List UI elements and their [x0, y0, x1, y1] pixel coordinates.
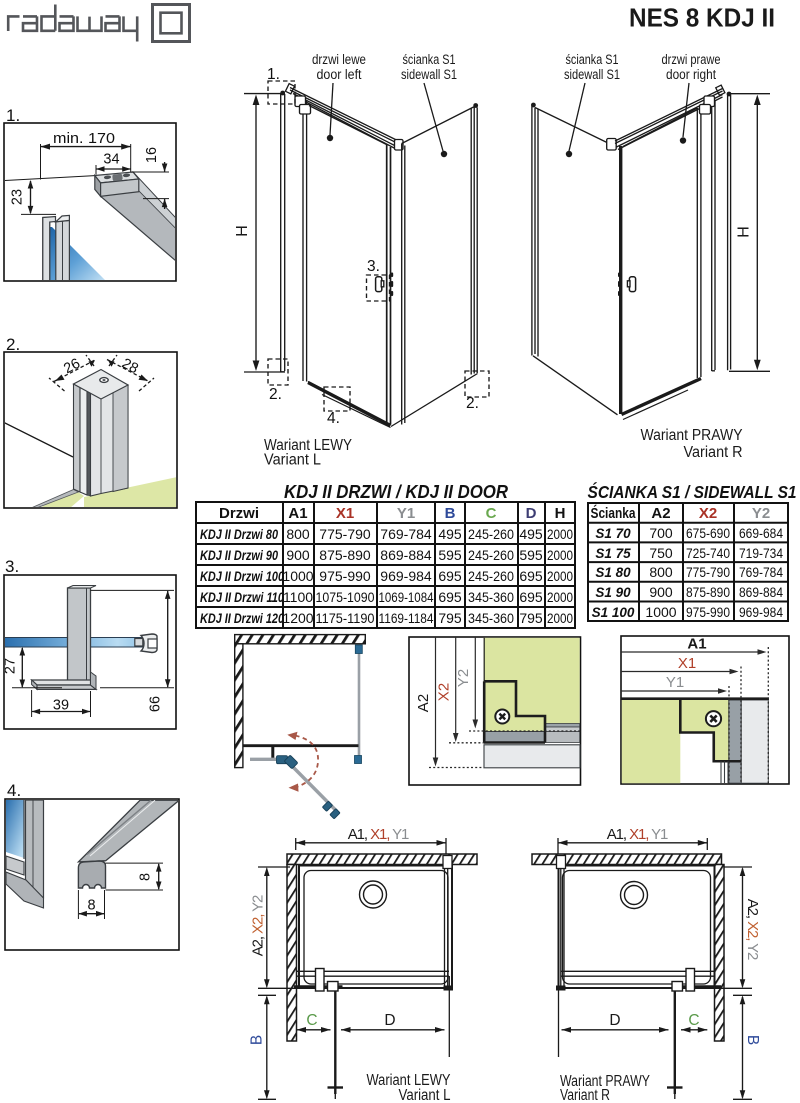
svg-text:595: 595: [519, 547, 543, 563]
svg-text:KDJ II Drzwi 80: KDJ II Drzwi 80: [200, 527, 278, 542]
svg-text:675-690: 675-690: [686, 525, 730, 541]
svg-text:X2: X2: [436, 683, 453, 701]
svg-text:S1 100: S1 100: [592, 605, 635, 620]
svg-text:A1: A1: [288, 505, 307, 522]
svg-text:975-990: 975-990: [319, 568, 371, 584]
svg-text:H: H: [736, 226, 753, 238]
svg-text:Ścianka: Ścianka: [591, 504, 637, 522]
svg-text:16: 16: [144, 147, 160, 163]
svg-text:door left: door left: [317, 67, 362, 82]
svg-text:KDJ II Drzwi 100: KDJ II Drzwi 100: [200, 569, 284, 584]
svg-text:H: H: [555, 505, 566, 522]
svg-text:S1 70: S1 70: [595, 526, 631, 541]
svg-text:H: H: [234, 225, 251, 237]
svg-text:Variant L: Variant L: [264, 452, 321, 469]
svg-text:66: 66: [148, 696, 164, 712]
svg-text:1169-1184: 1169-1184: [379, 610, 434, 626]
svg-text:sidewall S1: sidewall S1: [564, 67, 620, 82]
svg-text:A1: A1: [687, 636, 706, 653]
svg-text:2000: 2000: [547, 547, 573, 563]
svg-text:A1, X1, Y1: A1, X1, Y1: [348, 826, 409, 843]
svg-text:595: 595: [438, 547, 462, 563]
svg-text:2000: 2000: [547, 589, 573, 605]
svg-text:245-260: 245-260: [468, 568, 514, 584]
svg-text:D: D: [384, 1012, 395, 1029]
svg-text:A1, X1, Y1: A1, X1, Y1: [607, 826, 668, 843]
svg-text:800: 800: [649, 564, 673, 580]
svg-text:2000: 2000: [547, 526, 573, 542]
svg-text:3.: 3.: [5, 557, 19, 576]
svg-text:S1 75: S1 75: [595, 546, 631, 561]
svg-text:D: D: [526, 505, 537, 522]
svg-text:Variant L: Variant L: [399, 1087, 451, 1103]
svg-text:KDJ II DRZWI / KDJ II DOOR: KDJ II DRZWI / KDJ II DOOR: [284, 482, 508, 502]
svg-text:245-260: 245-260: [468, 526, 514, 542]
svg-text:1100: 1100: [283, 589, 313, 605]
svg-text:X1: X1: [678, 655, 696, 672]
svg-text:Y1: Y1: [666, 674, 684, 691]
svg-text:719-734: 719-734: [739, 545, 783, 561]
svg-text:1175-1190: 1175-1190: [316, 610, 375, 626]
svg-text:769-784: 769-784: [380, 526, 432, 542]
svg-text:A2: A2: [415, 694, 432, 712]
svg-text:Y2: Y2: [752, 505, 770, 522]
svg-text:695: 695: [438, 568, 462, 584]
svg-text:1.: 1.: [6, 106, 20, 125]
svg-text:495: 495: [519, 526, 543, 542]
svg-text:669-684: 669-684: [739, 525, 783, 541]
svg-text:1200: 1200: [282, 610, 313, 626]
svg-text:969-984: 969-984: [380, 568, 432, 584]
svg-text:869-884: 869-884: [380, 547, 432, 563]
svg-text:C: C: [306, 1012, 317, 1029]
svg-text:8: 8: [87, 898, 95, 914]
svg-text:2.: 2.: [466, 395, 479, 412]
svg-text:X2: X2: [699, 505, 717, 522]
svg-text:KDJ II Drzwi 120: KDJ II Drzwi 120: [200, 611, 284, 626]
svg-text:775-790: 775-790: [686, 564, 730, 580]
svg-text:2.: 2.: [6, 335, 20, 354]
svg-text:B: B: [744, 1035, 761, 1045]
svg-text:drzwi prawe: drzwi prawe: [662, 52, 721, 67]
svg-text:775-790: 775-790: [319, 526, 371, 542]
svg-text:A2, X2, Y2: A2, X2, Y2: [250, 895, 267, 956]
svg-text:NES 8 KDJ II: NES 8 KDJ II: [629, 3, 775, 33]
svg-text:869-884: 869-884: [739, 584, 783, 600]
svg-text:Wariant PRAWY: Wariant PRAWY: [641, 427, 743, 444]
svg-text:975-990: 975-990: [686, 604, 730, 620]
svg-text:900: 900: [649, 584, 673, 600]
svg-text:ścianka S1: ścianka S1: [566, 52, 619, 67]
svg-text:23: 23: [10, 189, 26, 205]
svg-text:969-984: 969-984: [739, 604, 783, 620]
svg-text:695: 695: [438, 589, 462, 605]
svg-text:1.: 1.: [267, 66, 280, 83]
svg-text:795: 795: [519, 610, 543, 626]
svg-text:sidewall S1: sidewall S1: [401, 67, 457, 82]
svg-text:900: 900: [286, 547, 310, 563]
svg-text:345-360: 345-360: [468, 589, 514, 605]
svg-text:1075-1090: 1075-1090: [316, 589, 375, 605]
svg-text:695: 695: [519, 568, 543, 584]
svg-text:Y2: Y2: [455, 669, 472, 687]
svg-text:S1 90: S1 90: [595, 585, 631, 600]
svg-text:Variant R: Variant R: [560, 1087, 610, 1103]
svg-text:875-890: 875-890: [319, 547, 371, 563]
svg-text:1000: 1000: [645, 604, 676, 620]
svg-text:4.: 4.: [327, 410, 340, 427]
svg-text:1000: 1000: [282, 568, 313, 584]
svg-text:725-740: 725-740: [686, 545, 730, 561]
svg-text:750: 750: [649, 545, 673, 561]
svg-text:495: 495: [438, 526, 462, 542]
svg-text:KDJ II Drzwi 90: KDJ II Drzwi 90: [200, 548, 278, 563]
svg-text:245-260: 245-260: [468, 547, 514, 563]
svg-text:ścianka S1: ścianka S1: [403, 52, 456, 67]
svg-text:drzwi lewe: drzwi lewe: [312, 52, 366, 67]
svg-text:D: D: [609, 1012, 620, 1029]
svg-text:Drzwi: Drzwi: [219, 505, 259, 522]
svg-text:min. 170: min. 170: [53, 131, 115, 147]
svg-text:34: 34: [103, 152, 119, 168]
svg-text:A2, X2, Y2: A2, X2, Y2: [744, 899, 761, 960]
svg-text:2.: 2.: [269, 386, 282, 403]
svg-text:A2: A2: [651, 505, 670, 522]
svg-text:2000: 2000: [547, 610, 573, 626]
svg-text:4.: 4.: [7, 781, 21, 800]
svg-text:1069-1084: 1069-1084: [379, 589, 434, 605]
svg-text:C: C: [688, 1012, 699, 1029]
svg-text:3.: 3.: [367, 258, 380, 275]
svg-text:2000: 2000: [547, 568, 573, 584]
svg-text:ŚCIANKA S1 / SIDEWALL S1: ŚCIANKA S1 / SIDEWALL S1: [588, 481, 797, 502]
svg-text:C: C: [486, 505, 497, 522]
svg-text:700: 700: [649, 525, 673, 541]
svg-text:Y1: Y1: [397, 505, 415, 522]
svg-text:Variant R: Variant R: [684, 444, 743, 461]
svg-text:695: 695: [519, 589, 543, 605]
svg-text:795: 795: [438, 610, 462, 626]
svg-text:B: B: [249, 1035, 266, 1045]
svg-text:345-360: 345-360: [468, 610, 514, 626]
svg-text:S1 80: S1 80: [595, 565, 631, 580]
svg-text:8: 8: [138, 873, 154, 881]
svg-text:X1: X1: [336, 505, 354, 522]
svg-text:875-890: 875-890: [686, 584, 730, 600]
svg-text:KDJ II Drzwi 110: KDJ II Drzwi 110: [200, 590, 284, 605]
svg-text:door right: door right: [666, 67, 716, 82]
svg-text:769-784: 769-784: [739, 564, 783, 580]
svg-text:39: 39: [53, 698, 69, 714]
svg-text:800: 800: [286, 526, 310, 542]
svg-text:B: B: [445, 505, 456, 522]
